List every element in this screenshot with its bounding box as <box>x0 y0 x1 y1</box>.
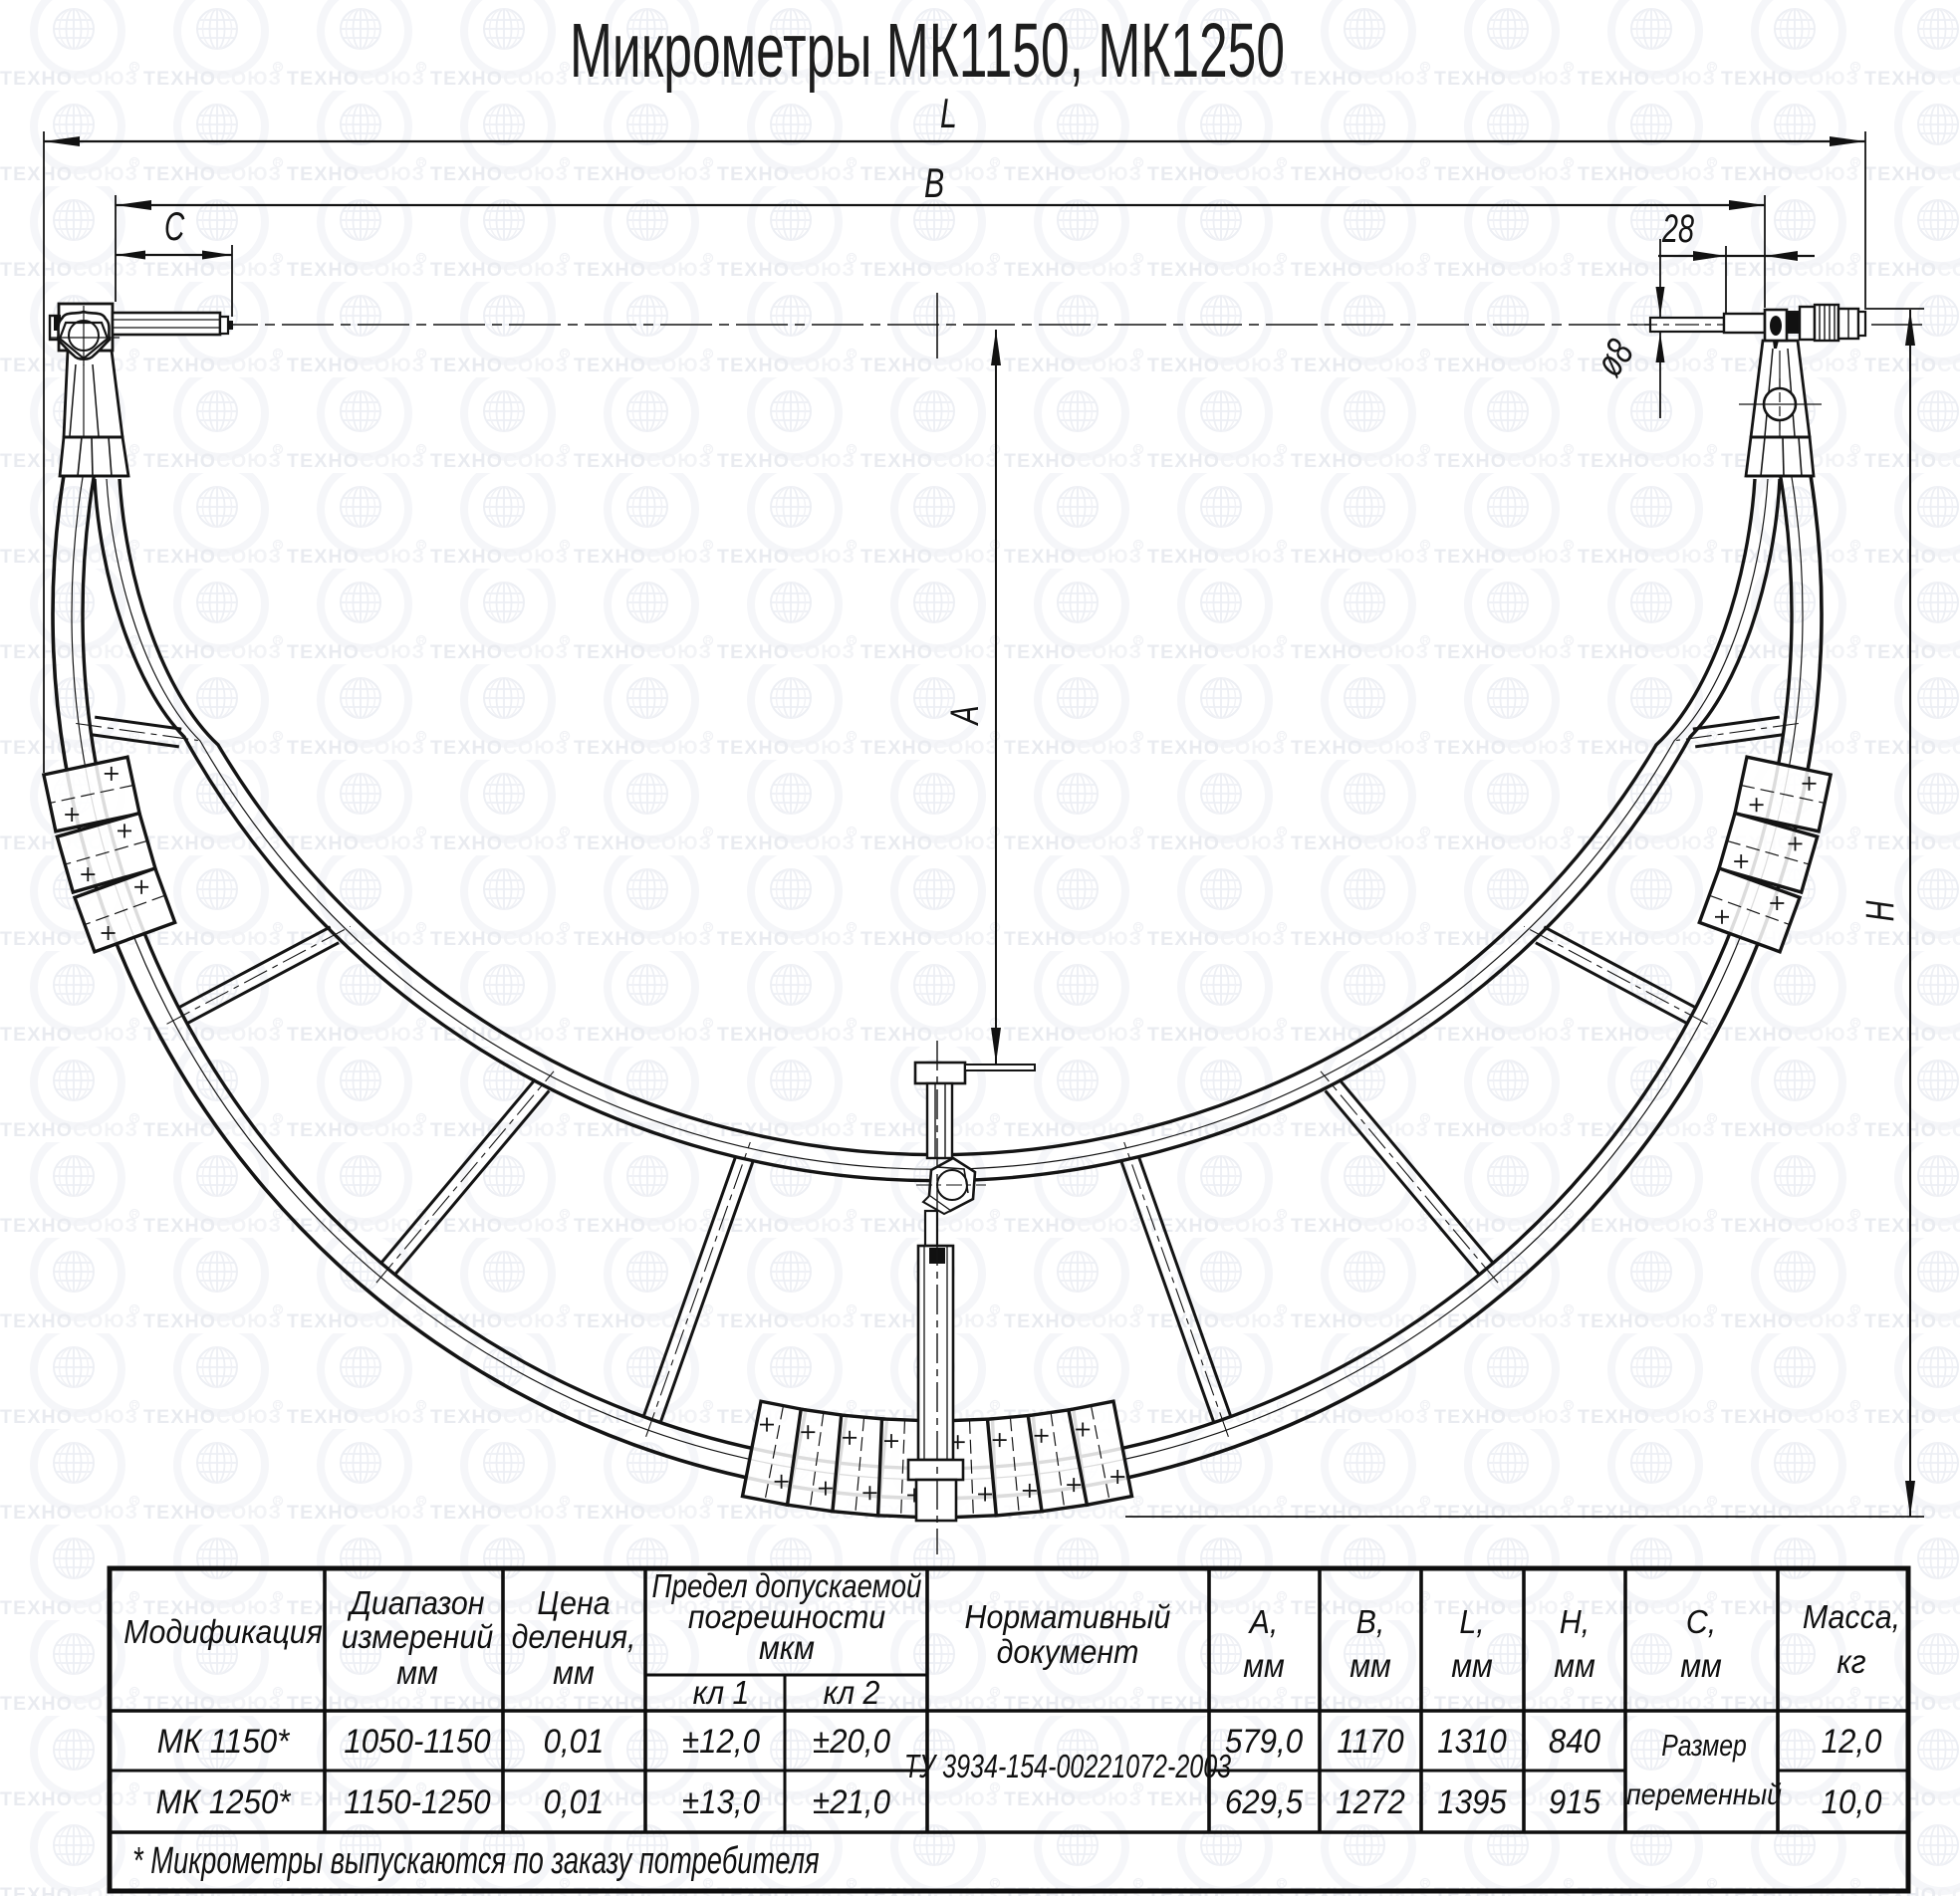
svg-text:кг: кг <box>1837 1643 1865 1680</box>
svg-text:L,: L, <box>1459 1603 1484 1640</box>
svg-text:измерений: измерений <box>342 1618 494 1655</box>
svg-text:Цена: Цена <box>537 1584 610 1621</box>
svg-text:мм: мм <box>553 1654 595 1691</box>
svg-text:ТУ 3934-154-00221072-2003: ТУ 3934-154-00221072-2003 <box>904 1749 1232 1785</box>
svg-text:1050-1150: 1050-1150 <box>344 1722 490 1761</box>
svg-text:0,01: 0,01 <box>544 1782 605 1821</box>
svg-text:C: C <box>164 205 185 249</box>
svg-text:мм: мм <box>1349 1647 1391 1684</box>
svg-text:±20,0: ±20,0 <box>813 1722 890 1761</box>
svg-text:Н,: Н, <box>1560 1603 1590 1640</box>
svg-text:Размер: Размер <box>1661 1728 1747 1762</box>
svg-text:1272: 1272 <box>1336 1782 1405 1821</box>
svg-text:мм: мм <box>1680 1647 1722 1684</box>
svg-text:* Микрометры выпускаются по за: * Микрометры выпускаются по заказу потре… <box>132 1840 820 1882</box>
svg-text:629,5: 629,5 <box>1225 1782 1304 1821</box>
svg-text:С,: С, <box>1686 1603 1716 1640</box>
svg-text:28: 28 <box>1661 206 1694 251</box>
svg-text:мм: мм <box>1554 1647 1595 1684</box>
svg-text:±21,0: ±21,0 <box>813 1782 890 1821</box>
svg-text:1395: 1395 <box>1437 1782 1507 1821</box>
svg-text:Нормативный: Нормативный <box>965 1598 1171 1635</box>
svg-text:579,0: 579,0 <box>1225 1722 1303 1761</box>
svg-text:МК 1250*: МК 1250* <box>156 1782 292 1821</box>
svg-text:12,0: 12,0 <box>1822 1722 1882 1761</box>
svg-text:840: 840 <box>1549 1722 1600 1761</box>
svg-text:0,01: 0,01 <box>544 1722 605 1761</box>
svg-text:В,: В, <box>1356 1603 1385 1640</box>
svg-text:H: H <box>1857 900 1902 921</box>
svg-text:мм: мм <box>1451 1647 1493 1684</box>
svg-text:1310: 1310 <box>1437 1722 1507 1761</box>
svg-text:A: A <box>942 705 987 726</box>
svg-text:мм: мм <box>396 1654 438 1691</box>
svg-text:А,: А, <box>1248 1603 1279 1640</box>
svg-text:±12,0: ±12,0 <box>682 1722 760 1761</box>
svg-text:деления,: деления, <box>512 1618 636 1655</box>
svg-text:документ: документ <box>997 1633 1139 1670</box>
svg-text:Диапазон: Диапазон <box>348 1584 485 1621</box>
svg-text:мм: мм <box>1243 1647 1285 1684</box>
svg-text:мкм: мкм <box>759 1629 815 1666</box>
svg-text:Микрометры МК1150, МК1250: Микрометры МК1150, МК1250 <box>570 8 1285 94</box>
svg-text:10,0: 10,0 <box>1822 1782 1882 1821</box>
svg-text:1150-1250: 1150-1250 <box>344 1782 490 1821</box>
svg-text:МК 1150*: МК 1150* <box>157 1722 291 1761</box>
svg-text:915: 915 <box>1549 1782 1601 1821</box>
svg-text:±13,0: ±13,0 <box>682 1782 760 1821</box>
svg-text:переменный: переменный <box>1626 1778 1782 1812</box>
svg-text:Модификация: Модификация <box>123 1613 323 1650</box>
svg-text:B: B <box>924 159 944 206</box>
svg-text:кл 2: кл 2 <box>824 1674 880 1711</box>
svg-text:Масса,: Масса, <box>1803 1598 1900 1635</box>
svg-text:кл 1: кл 1 <box>693 1674 750 1711</box>
svg-text:1170: 1170 <box>1337 1722 1403 1761</box>
svg-text:L: L <box>940 90 957 136</box>
